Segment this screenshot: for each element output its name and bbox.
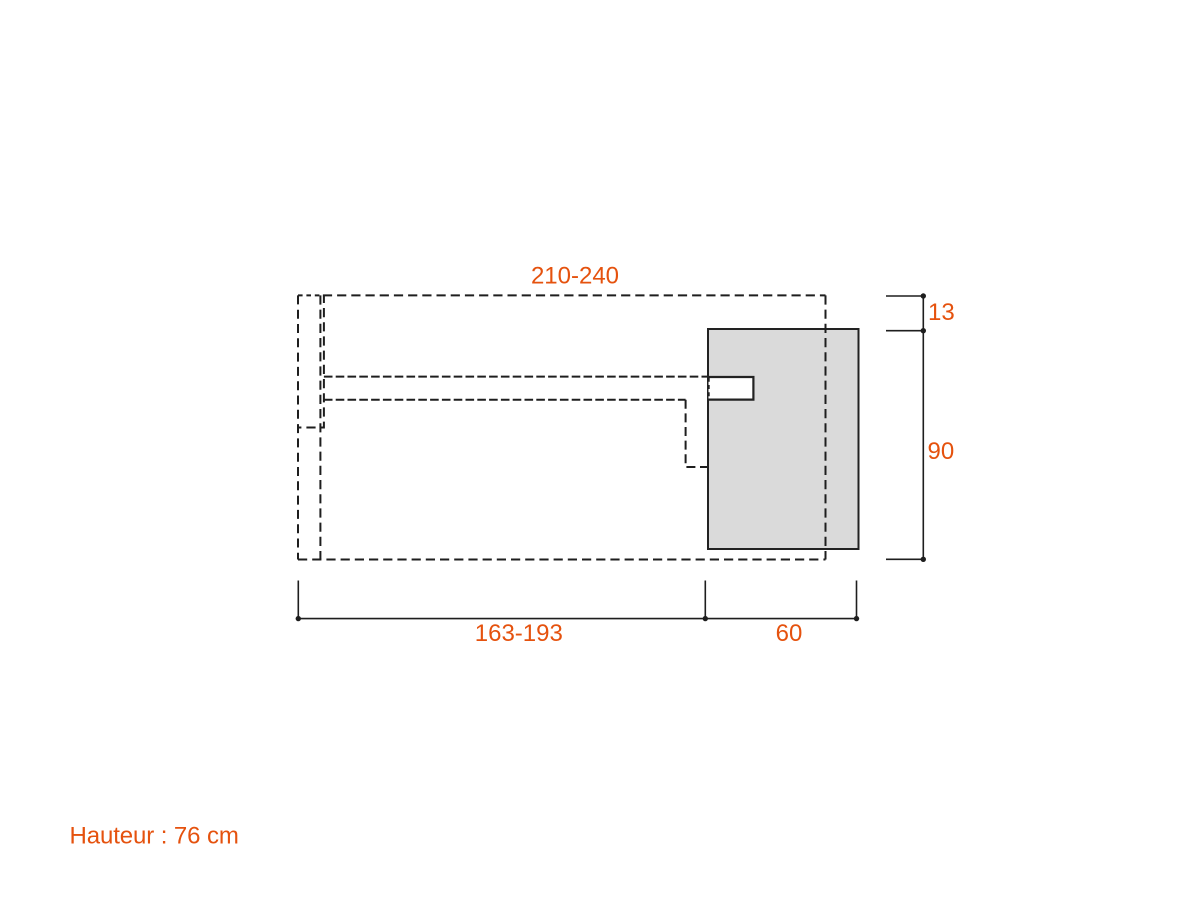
svg-text:163-193: 163-193 bbox=[475, 620, 563, 647]
svg-text:90: 90 bbox=[928, 438, 955, 465]
svg-text:Hauteur : 76 cm: Hauteur : 76 cm bbox=[70, 823, 239, 850]
svg-text:60: 60 bbox=[776, 620, 803, 647]
svg-text:13: 13 bbox=[928, 299, 955, 326]
svg-text:210-240: 210-240 bbox=[531, 263, 619, 290]
